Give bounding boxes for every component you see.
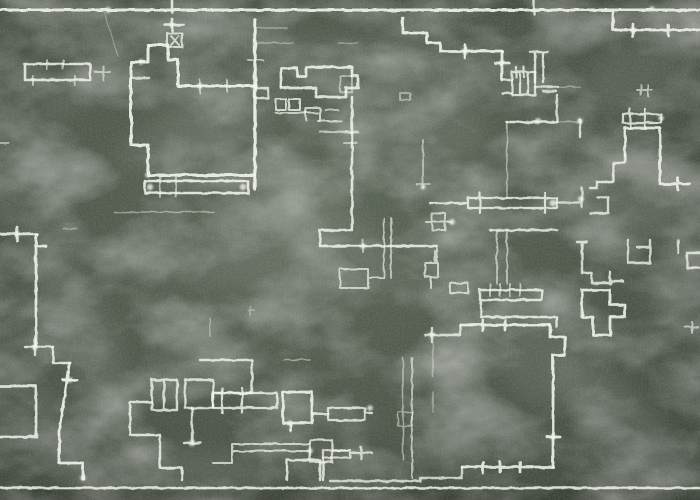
chalk-grain-layer — [0, 0, 700, 500]
chalk-blob — [658, 115, 664, 121]
chalk-blob — [499, 60, 505, 66]
chalk-blob — [449, 219, 455, 225]
chalk-blob — [197, 83, 203, 89]
chalkboard-photo — [0, 0, 700, 500]
chalk-blob — [550, 434, 556, 440]
chalkboard-drawing — [0, 0, 700, 500]
chalk-blob — [32, 344, 38, 350]
chalk-blob — [577, 118, 583, 124]
chalk-blob — [287, 420, 292, 425]
chalk-blob — [429, 332, 435, 338]
chalk-blob — [169, 22, 174, 27]
chalk-blob — [80, 475, 86, 481]
chalk-blob — [138, 59, 144, 65]
chalk-blob — [67, 377, 73, 383]
chalk-blob — [535, 118, 541, 124]
chalk-blob — [145, 172, 151, 178]
chalk-blob — [578, 196, 584, 202]
chalk-blob — [421, 185, 426, 190]
chalk-blob — [462, 48, 468, 54]
chalk-blob — [147, 184, 153, 190]
chalk-blob — [360, 243, 365, 248]
chalk-blob — [252, 84, 258, 90]
chalk-blob — [550, 200, 557, 207]
chalk-blob — [307, 448, 313, 454]
chalk-blob — [14, 231, 20, 237]
chalk-blob — [240, 184, 246, 190]
chalk-blob — [189, 440, 195, 446]
chalk-blob — [367, 405, 373, 411]
chalk-blob — [630, 27, 636, 33]
